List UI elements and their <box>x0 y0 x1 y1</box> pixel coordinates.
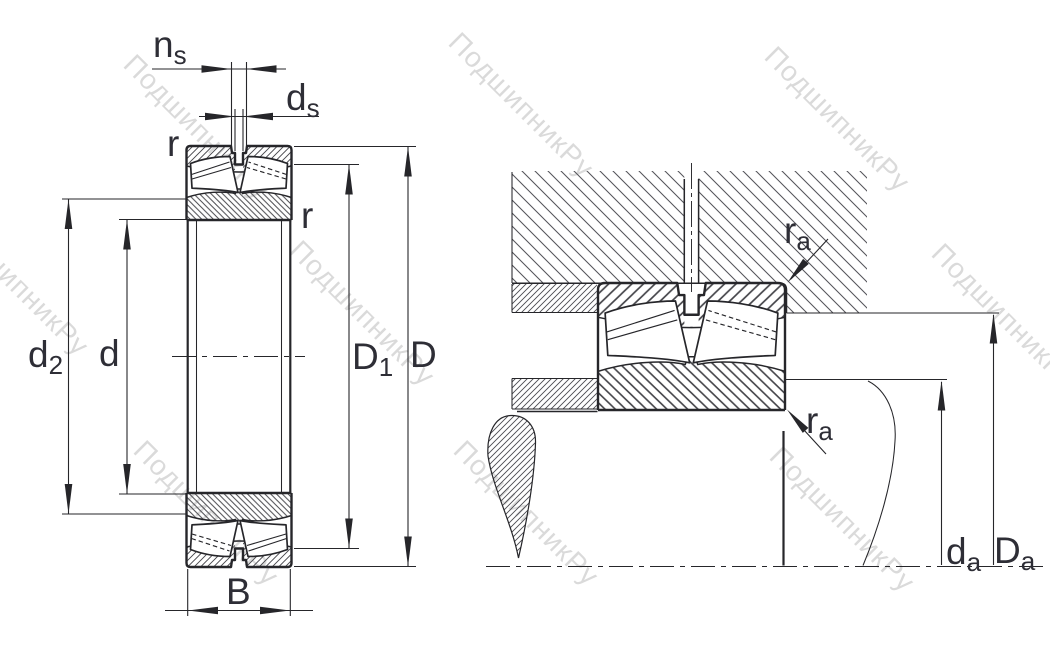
dimension-D: D <box>404 147 437 567</box>
label-r-inner-ring: r <box>301 195 313 236</box>
right-view-mounting: ra ra da Da <box>486 163 1046 577</box>
dimension-ns: ns <box>152 24 286 73</box>
technical-drawing-page: ПодшипникРу ПодшипникРу ПодшипникРу Подш… <box>0 0 1050 650</box>
watermark-text: ПодшипникРу <box>926 237 1050 394</box>
dim-label-ra-bottom: ra <box>806 400 833 446</box>
dim-label-ds: ds <box>286 77 320 123</box>
bearing-drawing-svg: ПодшипникРу ПодшипникРу ПодшипникРу Подш… <box>0 0 1050 650</box>
dim-label-ns: ns <box>153 24 187 70</box>
lubrication-hole <box>684 163 698 292</box>
dimension-d: d <box>99 220 131 495</box>
dim-label-da: da <box>946 531 982 577</box>
dim-label-Da: Da <box>994 530 1036 576</box>
dimension-ra-bottom: ra <box>787 400 833 454</box>
dim-label-D: D <box>410 334 437 375</box>
dim-label-d: d <box>99 333 120 374</box>
dim-label-B: B <box>226 571 251 612</box>
spacer-rings <box>512 284 597 409</box>
dimension-ds: ds <box>199 77 320 123</box>
dimension-d2: d2 <box>28 199 72 514</box>
mounted-bearing-section <box>598 283 785 410</box>
dimension-D1: D1 <box>345 165 393 549</box>
label-r-outer-ring: r <box>167 123 179 164</box>
watermark-text: ПодшипникРу <box>764 440 921 597</box>
watermark-text: ПодшипникРу <box>443 26 600 183</box>
